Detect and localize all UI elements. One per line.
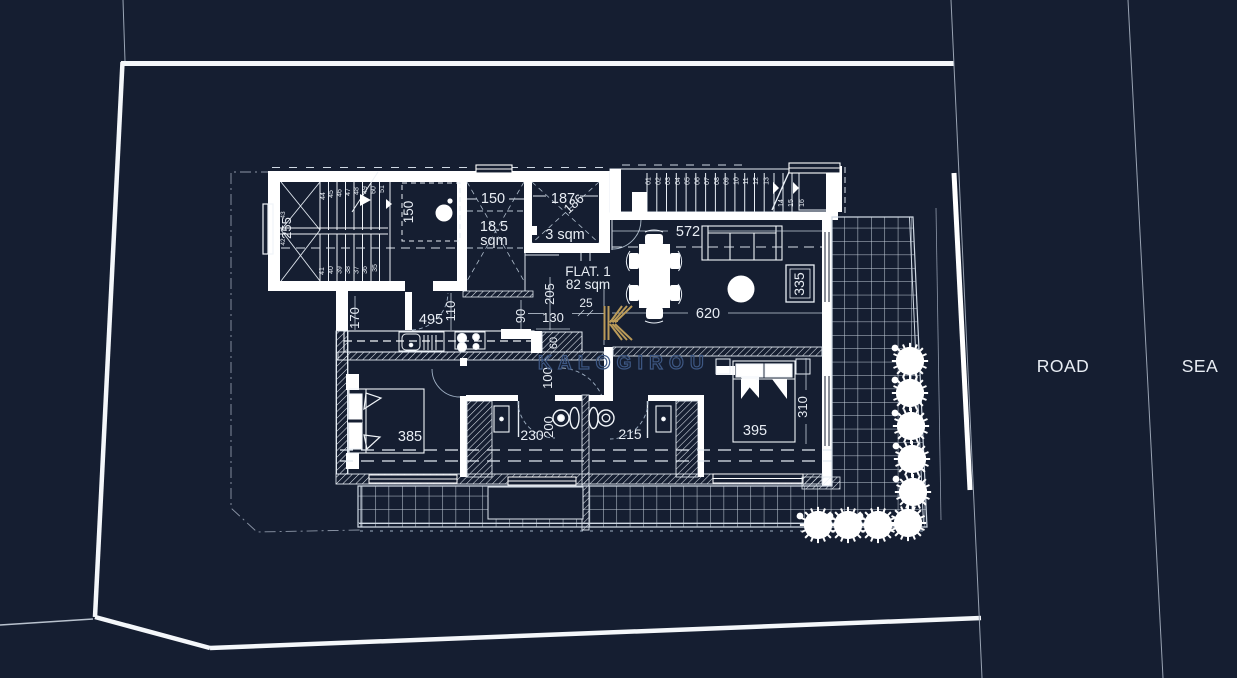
svg-text:09: 09 [724,177,731,185]
svg-text:07: 07 [704,177,711,185]
svg-text:205: 205 [542,283,557,305]
svg-text:05: 05 [685,177,692,185]
svg-text:51: 51 [379,185,386,193]
svg-text:12: 12 [753,177,760,185]
svg-text:572: 572 [676,224,700,240]
svg-text:395: 395 [743,423,767,439]
svg-text:04: 04 [675,177,682,185]
svg-text:14: 14 [778,199,785,207]
svg-text:150: 150 [481,191,505,207]
svg-text:310: 310 [795,396,810,418]
svg-text:36: 36 [362,266,369,274]
svg-text:3 sqm: 3 sqm [545,227,585,243]
svg-text:130: 130 [542,310,564,325]
svg-text:KALOGIROU: KALOGIROU [538,353,710,374]
svg-text:44: 44 [320,192,327,200]
svg-text:16: 16 [799,199,806,207]
svg-text:ROAD: ROAD [1037,356,1090,376]
svg-text:60: 60 [371,186,378,194]
svg-text:385: 385 [398,429,422,445]
svg-text:43: 43 [280,211,287,219]
svg-text:495: 495 [419,312,443,328]
svg-text:15: 15 [788,199,795,207]
svg-text:sqm: sqm [480,233,507,249]
svg-text:11: 11 [743,177,750,184]
svg-text:08: 08 [714,177,721,185]
svg-text:38: 38 [345,266,352,274]
svg-text:82 sqm: 82 sqm [566,277,610,292]
svg-text:06: 06 [694,177,701,185]
svg-text:335: 335 [791,272,807,296]
svg-text:110: 110 [443,301,458,322]
svg-text:48: 48 [354,187,361,195]
svg-text:47: 47 [345,188,352,196]
svg-text:25: 25 [579,296,593,310]
svg-text:255: 255 [279,217,294,239]
svg-text:45: 45 [328,190,335,198]
svg-text:90: 90 [513,309,528,323]
svg-text:215: 215 [618,426,642,442]
svg-text:SEA: SEA [1182,356,1219,376]
svg-text:02: 02 [655,177,662,185]
svg-text:39: 39 [337,266,344,274]
svg-text:46: 46 [337,189,344,197]
svg-text:40: 40 [328,266,335,274]
svg-text:49: 49 [362,186,369,194]
svg-text:200: 200 [541,416,556,438]
svg-text:41: 41 [319,267,326,275]
svg-text:01: 01 [646,177,653,185]
svg-text:170: 170 [347,307,362,329]
svg-text:37: 37 [354,266,361,274]
svg-text:35: 35 [372,264,379,272]
svg-text:13: 13 [764,177,771,185]
svg-text:42: 42 [280,238,287,246]
svg-text:620: 620 [696,306,720,322]
svg-text:10: 10 [733,177,740,185]
svg-text:150: 150 [401,201,416,224]
svg-text:03: 03 [665,177,672,185]
